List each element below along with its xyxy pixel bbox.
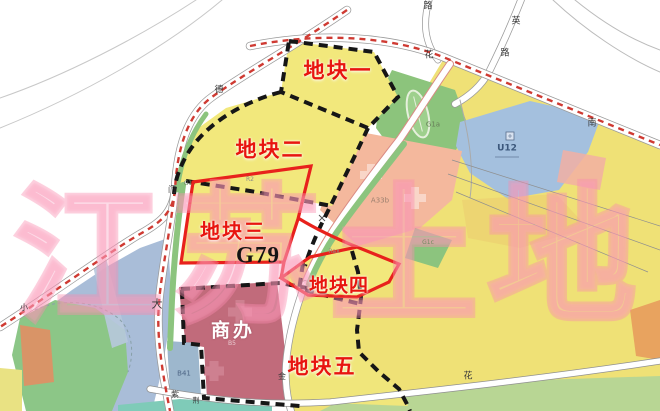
road-label-jin: 金	[278, 373, 286, 381]
label-code-b41: B41	[177, 371, 191, 378]
label-plot2: 地块二	[236, 140, 305, 161]
road-label-men: 门	[168, 186, 176, 194]
road-label-xiao: 小	[20, 304, 28, 312]
road-label-jing: 荆	[193, 398, 200, 405]
road-label-zi: 紫	[171, 391, 179, 399]
label-code-u12: U12	[497, 145, 517, 154]
label-plot3: 地块三	[200, 221, 266, 241]
road-label-hua-south: 花	[463, 373, 472, 382]
label-code-a33b: A33b	[371, 198, 389, 205]
label-code-g1: G1	[184, 181, 192, 187]
label-commercial: 商办	[211, 322, 255, 341]
label-g79: G79	[236, 244, 280, 267]
road-label-lu-top: 路	[423, 3, 432, 12]
label-code-g1a: G1a	[426, 122, 440, 129]
label-commercial-code: B5	[228, 341, 236, 347]
label-code-rax: Rax	[328, 249, 339, 255]
label-plot4: 地块四	[309, 277, 369, 296]
road-label-lu-mid: 路	[500, 50, 509, 59]
road-label-nan: 南	[587, 120, 596, 129]
road-label-da: 大	[152, 299, 163, 310]
parcel-orange-left	[20, 325, 54, 386]
road-label-de: 德	[214, 87, 223, 96]
label-plot5: 地块五	[288, 357, 357, 378]
road-label-hua-main: 花	[424, 52, 433, 61]
parcel-yellow-sliver	[0, 368, 22, 411]
label-code-r2: R2	[246, 177, 254, 183]
label-code-g1c: G1c	[422, 240, 434, 246]
road-label-ying: 英	[511, 18, 520, 27]
planning-map-screenshot: 江苏土地 地块一 地块二 地块三 G79 地块四 地块五 商办 B5 R2 G1…	[0, 0, 660, 411]
u12-subtext-bar	[495, 156, 519, 158]
label-plot1: 地块一	[304, 61, 373, 82]
